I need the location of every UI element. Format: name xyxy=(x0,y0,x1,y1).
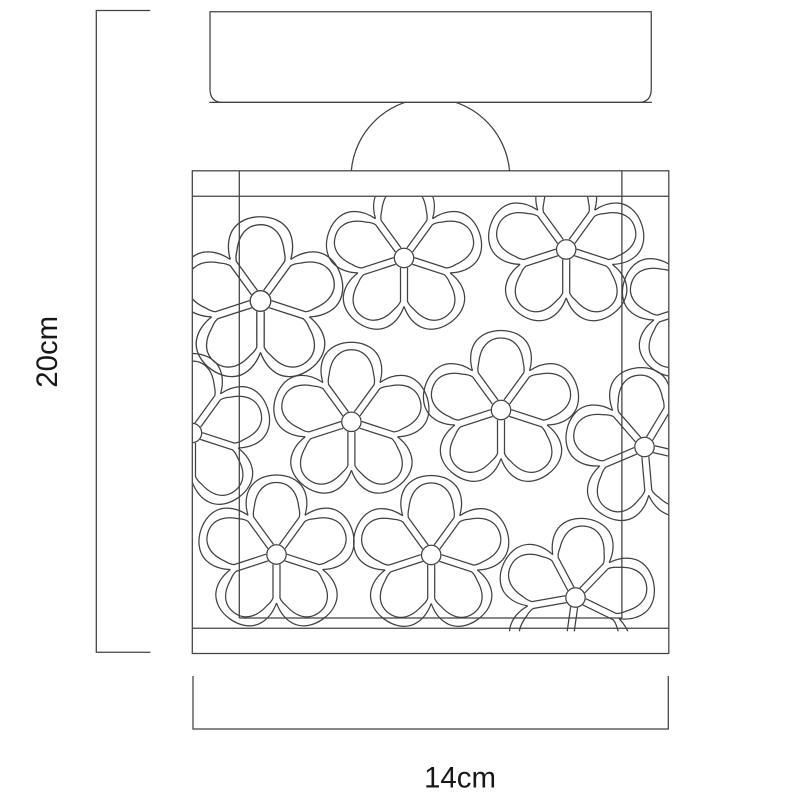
svg-text:20cm: 20cm xyxy=(31,316,64,388)
svg-text:14cm: 14cm xyxy=(424,762,496,795)
